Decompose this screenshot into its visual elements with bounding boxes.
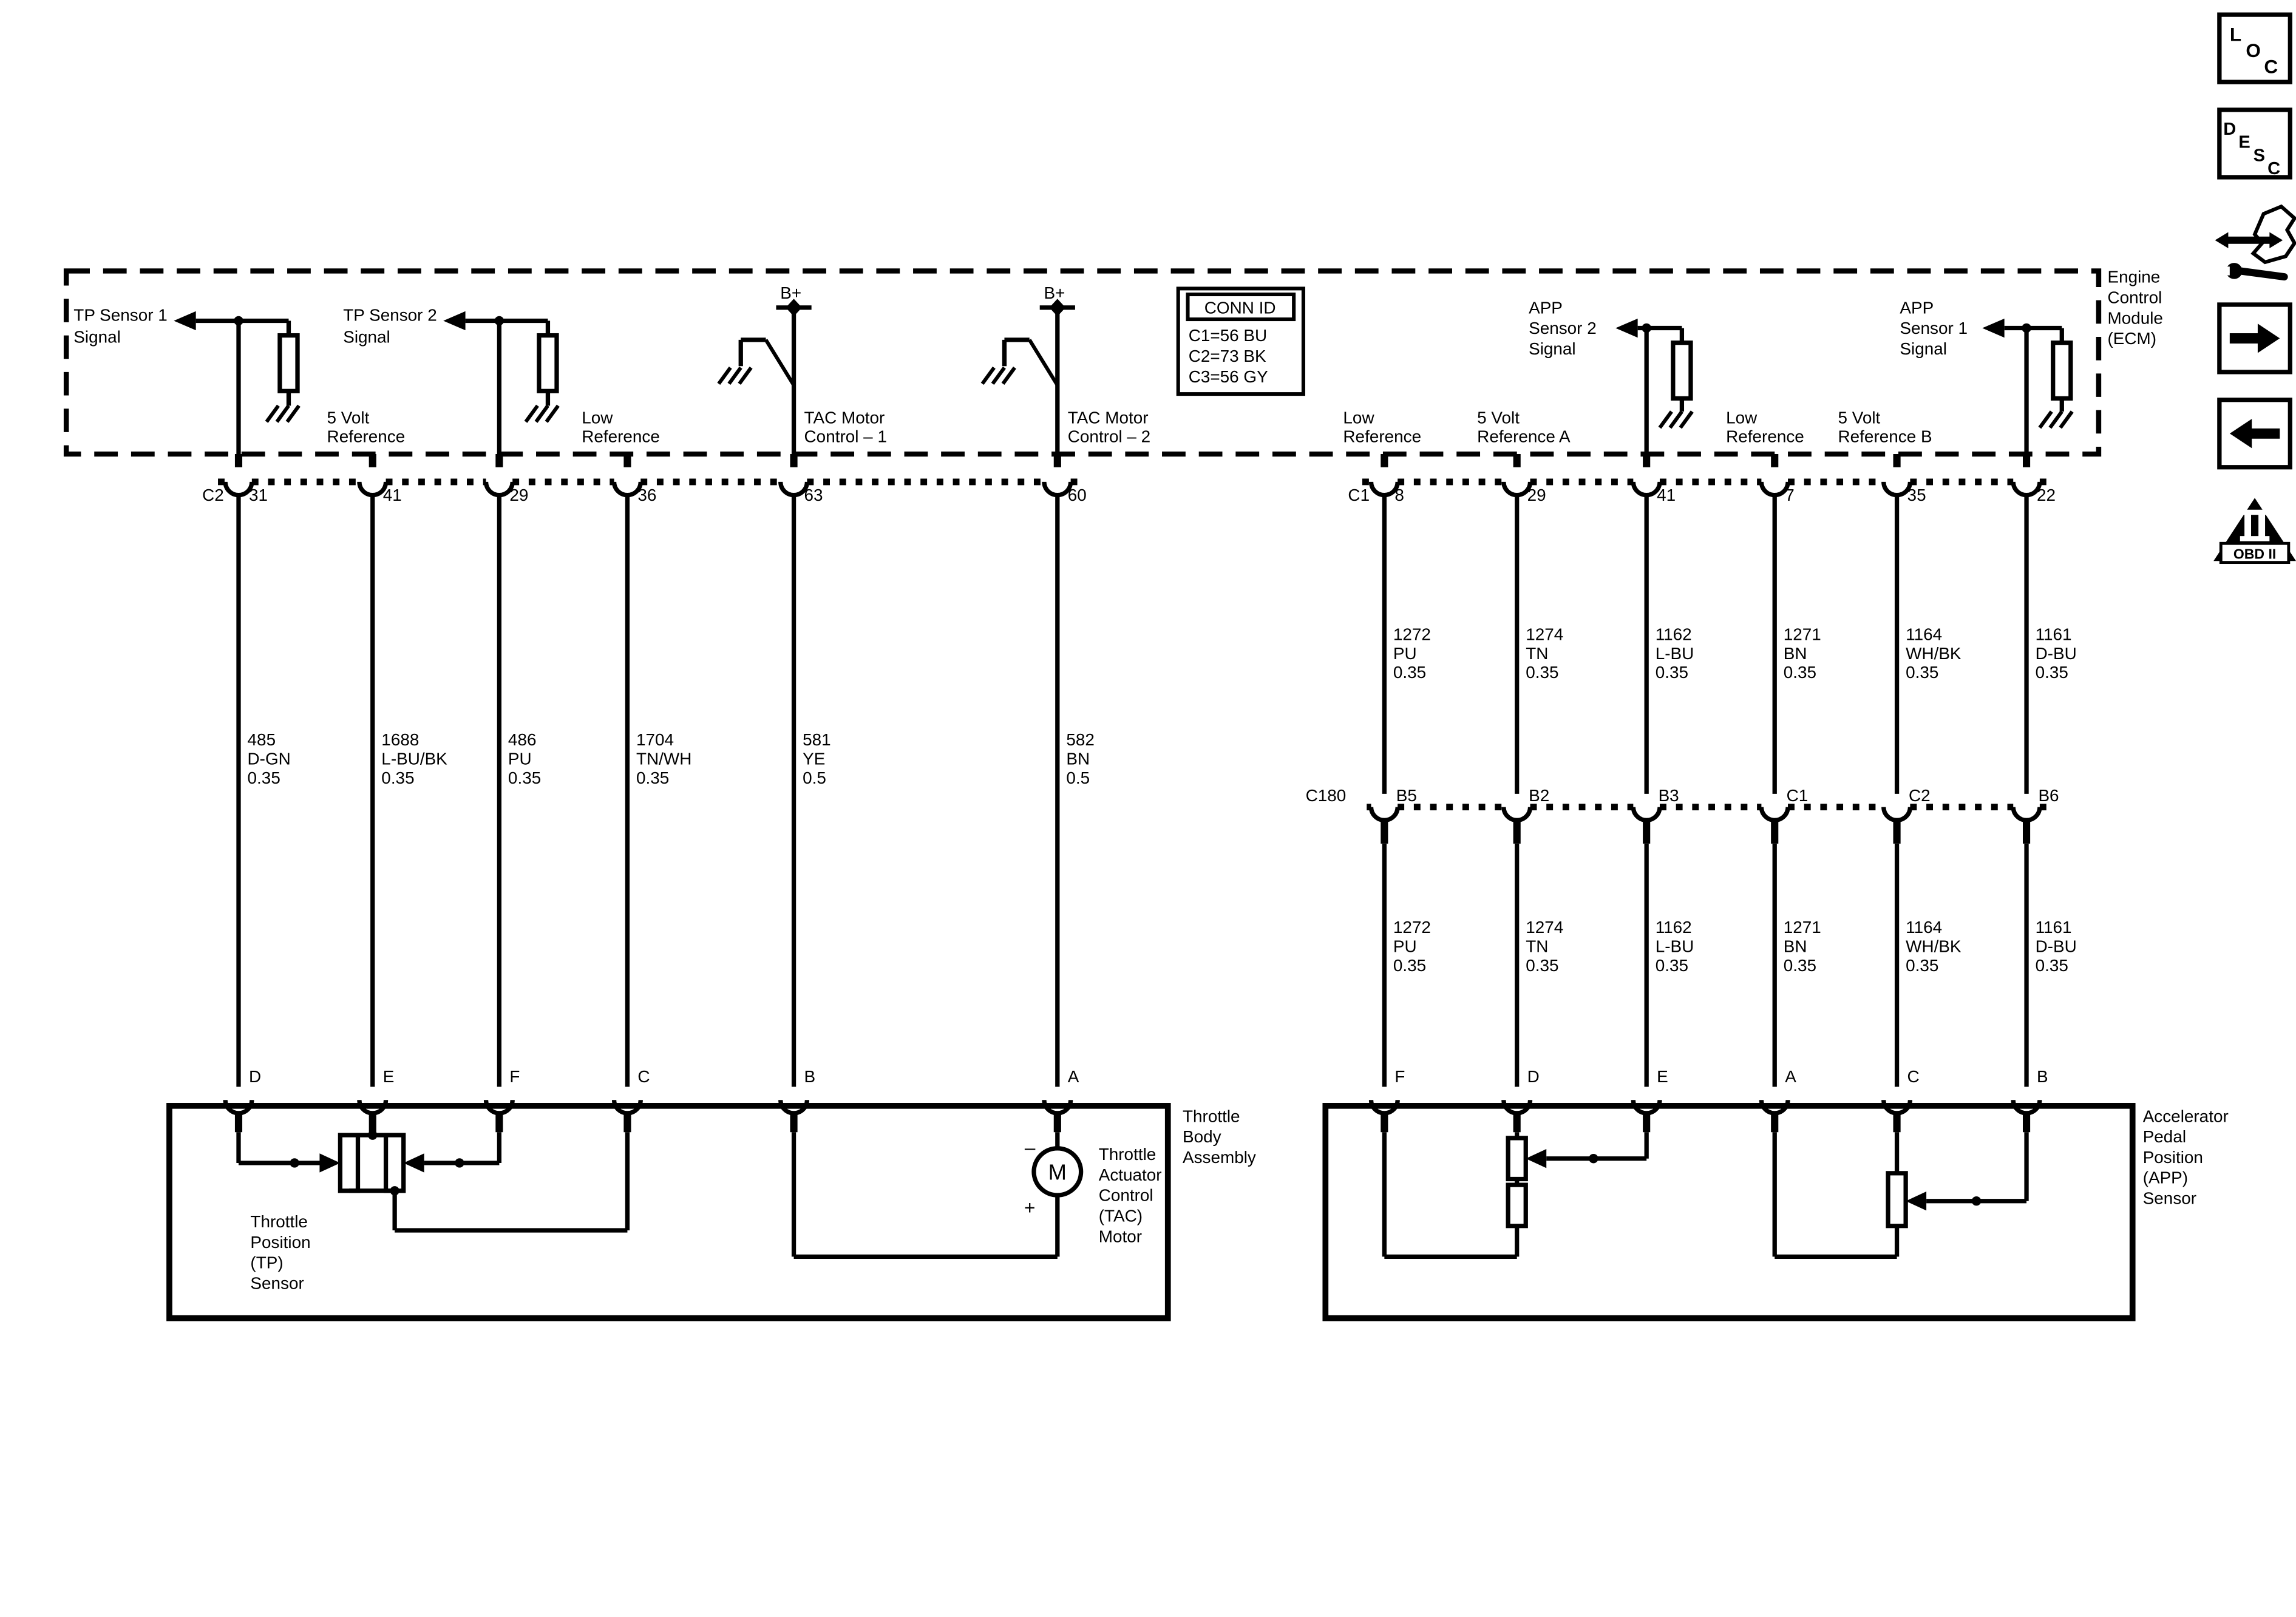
resistor: [1888, 1173, 1906, 1226]
connector-arc: [1504, 482, 1530, 495]
pin-number: 63: [804, 486, 823, 504]
wire-label: BN: [1784, 937, 1807, 956]
c180-pin: B2: [1529, 786, 1549, 805]
app-sensor-label: Accelerator Pedal Position (APP) Sensor: [2143, 1107, 2229, 1207]
wire-label: TN/WH: [636, 750, 691, 768]
low-ref-label: Reference: [1343, 427, 1421, 446]
obd2-icon[interactable]: OBD II: [2213, 498, 2296, 562]
tba-label-line: Assembly: [1183, 1148, 1256, 1167]
wire-label: 1274: [1526, 625, 1563, 644]
wire-label: 0.35: [248, 768, 280, 787]
resistor: [280, 336, 297, 392]
wire-label: D-BU: [2036, 937, 2077, 956]
wire-label: L-BU/BK: [381, 750, 447, 768]
ground-icon: [526, 405, 558, 422]
tac-motor-label: Actuator: [1099, 1165, 1162, 1184]
wire-label: 1164: [1906, 625, 1942, 644]
wire-label: 0.35: [1784, 956, 1816, 975]
tp-sensor-label: Position: [250, 1233, 310, 1252]
tac-motor-control2-driver: B+ TAC Motor Control – 2: [982, 283, 1150, 457]
wire-label: L-BU: [1656, 937, 1694, 956]
app2-potentiometer: [1384, 1132, 1646, 1256]
app1-label: Sensor 1: [1900, 319, 1968, 337]
connector-arc: [1633, 807, 1660, 821]
wire-label: 0.35: [1656, 956, 1688, 975]
connector-arc: [781, 482, 807, 495]
low-ref-label: Reference: [582, 427, 660, 446]
wire-label: 1688: [381, 730, 419, 749]
pin-number: 29: [509, 486, 528, 504]
wire-label: 0.35: [1656, 663, 1688, 682]
pin-letter: A: [1068, 1067, 1079, 1086]
wire-label: 1272: [1393, 918, 1431, 937]
wire-label: D-BU: [2036, 644, 2077, 663]
wire-label: 581: [803, 730, 831, 749]
tac-motor: M – + Throttle Actuator Control (TAC) Mo…: [794, 1132, 1162, 1256]
resistor: [1508, 1185, 1526, 1226]
app-label-line: (APP): [2143, 1168, 2188, 1187]
tba-label-line: Throttle: [1183, 1107, 1240, 1125]
wiper-arrow-icon: [319, 1153, 340, 1172]
wire-label: 0.35: [1393, 663, 1426, 682]
wire-label: 1271: [1784, 918, 1821, 937]
wire-label: WH/BK: [1906, 937, 1961, 956]
description-icon[interactable]: D E S C: [2220, 110, 2290, 178]
wire-label: 0.35: [1526, 956, 1558, 975]
wire-label: 0.35: [508, 768, 541, 787]
connector-arc: [225, 482, 252, 495]
pin-letter: B: [2037, 1067, 2048, 1086]
app-label-line: Sensor: [2143, 1189, 2196, 1208]
wiring-diagram: Engine Control Module (ECM) TP Sensor 1 …: [0, 0, 2296, 1617]
wire-label: 0.35: [1906, 663, 1938, 682]
harness-labels: 31D41E29F36C63B60A8FB529DB241EB37AC135CC…: [248, 486, 2077, 1086]
pin-number: 7: [1785, 486, 1795, 504]
ground-icon: [1660, 412, 1692, 428]
signal-arrow-icon: [1615, 319, 1637, 337]
junction-dot: [368, 1130, 378, 1139]
tac-motor-label: Throttle: [1099, 1145, 1156, 1164]
app1-label: Signal: [1900, 339, 1947, 358]
harness-wrench-icon[interactable]: [2215, 206, 2295, 279]
motor-minus: –: [1025, 1137, 1036, 1159]
wire-label: 0.5: [1066, 768, 1090, 787]
pin-letter: B: [804, 1067, 816, 1086]
pin-letter: F: [1394, 1067, 1405, 1086]
desc-letter: C: [2267, 159, 2280, 178]
wire-label: 0.35: [2036, 956, 2068, 975]
connector-arc: [486, 482, 513, 495]
connector-arc: [1504, 807, 1530, 821]
resistor: [340, 1135, 358, 1191]
tp-sensor1-signal-circuit: TP Sensor 1 Signal: [73, 306, 299, 457]
five-volt-ref-label: 5 Volt: [327, 408, 370, 427]
app-label-line: Pedal: [2143, 1127, 2186, 1146]
connector-arc: [1044, 482, 1071, 495]
ecm-label-line: (ECM): [2107, 329, 2156, 348]
wire-label: L-BU: [1656, 644, 1694, 663]
obd2-label: OBD II: [2233, 546, 2276, 562]
pin-letter: C: [1907, 1067, 1920, 1086]
app1-potentiometer: [1775, 1132, 2026, 1256]
wire-label: 1272: [1393, 625, 1431, 644]
conn-id-row: C1=56 BU: [1189, 326, 1267, 345]
ecm-label-line: Control: [2107, 288, 2162, 307]
wire-label: 1164: [1906, 918, 1942, 937]
ground-icon: [982, 368, 1014, 384]
wire-label: 0.35: [1906, 956, 1938, 975]
app2-label: APP: [1529, 298, 1563, 317]
c180-pin: C1: [1787, 786, 1809, 805]
pin-letter: F: [509, 1067, 520, 1086]
tac-motor-control1-driver: B+ TAC Motor Control – 1: [719, 283, 887, 457]
wire-label: 0.35: [381, 768, 414, 787]
loc-letter: C: [2264, 56, 2278, 78]
wiper-arrow-icon: [1526, 1149, 1546, 1168]
tac2-label: TAC Motor: [1068, 408, 1149, 427]
conn-id-row: C3=56 GY: [1189, 367, 1268, 386]
pin-letter: D: [1527, 1067, 1540, 1086]
ecm-label-line: Module: [2107, 308, 2162, 327]
bplus-label: B+: [780, 283, 801, 302]
wiper-arrow-icon: [1906, 1192, 1926, 1210]
tp-sensor-potentiometer: Throttle Position (TP) Sensor: [239, 1130, 627, 1292]
harness-wires: [218, 454, 2050, 1132]
tp-sensor-label: Throttle: [250, 1212, 308, 1231]
wire-label: TN: [1526, 937, 1548, 956]
c180-pin: B3: [1659, 786, 1679, 805]
pin-number: 22: [2037, 486, 2056, 504]
pin-number: 41: [383, 486, 402, 504]
tac-motor-label: (TAC): [1099, 1207, 1143, 1225]
throttle-body-assembly-label: Throttle Body Assembly: [1183, 1107, 1256, 1166]
wire-label: 0.5: [803, 768, 826, 787]
back-arrow-icon[interactable]: [2220, 400, 2290, 467]
ecm-label: Engine Control Module (ECM): [2107, 268, 2162, 348]
wire-label: 0.35: [636, 768, 669, 787]
app-sensor-box: [1325, 1106, 2132, 1318]
five-volt-ref-label: Reference: [327, 427, 406, 446]
connector-arc: [1884, 807, 1911, 821]
junction-dot: [455, 1158, 464, 1167]
switch-blade: [766, 340, 793, 385]
ground-icon: [719, 368, 751, 384]
signal-arrow-icon: [443, 311, 465, 330]
wire-label: BN: [1066, 750, 1090, 768]
wire-label: 1162: [1656, 625, 1692, 644]
low-ref-label: Reference: [1726, 427, 1804, 446]
five-volt-ref-b-label: 5 Volt: [1838, 408, 1881, 427]
five-volt-ref-a-label: Reference A: [1477, 427, 1571, 446]
signal-arrow-icon: [174, 311, 195, 330]
forward-arrow-icon[interactable]: [2220, 305, 2290, 372]
tp-sensor-label: Sensor: [250, 1274, 304, 1293]
resistor: [386, 1135, 404, 1191]
tp2-label: TP Sensor 2: [343, 306, 437, 325]
connector-arc: [1371, 807, 1398, 821]
tac1-label: Control – 1: [804, 427, 887, 446]
low-ref-label: Low: [1726, 408, 1758, 427]
connector-arc: [1371, 482, 1398, 495]
desc-letter: D: [2223, 120, 2236, 139]
junction-dot: [290, 1158, 299, 1167]
pin-number: 29: [1527, 486, 1546, 504]
wire-label: PU: [508, 750, 532, 768]
desc-letter: E: [2238, 133, 2250, 152]
wire-label: TN: [1526, 644, 1548, 663]
pin-number: 36: [637, 486, 656, 504]
wiper-arrow-icon: [404, 1153, 424, 1172]
pin-number: 31: [249, 486, 268, 504]
low-ref-label: Low: [1343, 408, 1374, 427]
conn-id-title: CONN ID: [1204, 298, 1276, 317]
connector-id-c180: C180: [1306, 786, 1347, 805]
junction-dot: [1589, 1154, 1598, 1163]
c180-pin: B6: [2038, 786, 2059, 805]
tp-sensor-label: (TP): [250, 1253, 283, 1272]
c180-pin: B5: [1396, 786, 1417, 805]
resistor: [1673, 343, 1691, 399]
low-ref-label: Low: [582, 408, 613, 427]
pin-letter: D: [249, 1067, 261, 1086]
pin-letter: C: [637, 1067, 650, 1086]
c180-pin: C2: [1909, 786, 1931, 805]
tac1-label: TAC Motor: [804, 408, 885, 427]
wire-label: PU: [1393, 644, 1417, 663]
resistor: [2053, 343, 2071, 399]
pin-number: 60: [1068, 486, 1087, 504]
wire-label: 1271: [1784, 625, 1821, 644]
throttle-body-assembly-box: [169, 1106, 1168, 1318]
app2-label: Sensor 2: [1529, 319, 1597, 337]
wire-label: YE: [803, 750, 825, 768]
wire-label: 1161: [2036, 625, 2072, 644]
wire-label: 485: [248, 730, 276, 749]
connector-arc: [2013, 807, 2040, 821]
wire-label: 1704: [636, 730, 674, 749]
signal-arrow-icon: [1982, 319, 2004, 337]
app1-label: APP: [1900, 298, 1934, 317]
wire-label: 1161: [2036, 918, 2072, 937]
pin-number: 35: [1907, 486, 1926, 504]
connector-id-c1: C1: [1348, 486, 1370, 504]
connector-arc: [1633, 482, 1660, 495]
wire-label: 486: [508, 730, 537, 749]
loc-letter: O: [2246, 40, 2261, 61]
wire-label: WH/BK: [1906, 644, 1961, 663]
five-volt-ref-b-label: Reference B: [1838, 427, 1932, 446]
resistor: [539, 336, 557, 392]
wire-label: D-GN: [248, 750, 291, 768]
connector-arc: [1761, 482, 1788, 495]
ecm-label-line: Engine: [2107, 268, 2160, 286]
resistor: [1508, 1138, 1526, 1179]
app-label-line: Position: [2143, 1148, 2203, 1167]
connector-arc: [614, 482, 641, 495]
connector-arc: [359, 482, 386, 495]
wire-label: PU: [1393, 937, 1417, 956]
pin-letter: E: [383, 1067, 395, 1086]
five-volt-ref-a-label: 5 Volt: [1477, 408, 1520, 427]
desc-letter: S: [2254, 146, 2265, 166]
wire-label: 0.35: [1526, 663, 1558, 682]
motor-plus: +: [1024, 1197, 1035, 1218]
wire-label: 0.35: [1393, 956, 1426, 975]
tp2-label: Signal: [343, 328, 390, 347]
tp1-label: Signal: [73, 328, 121, 347]
junction-dot: [1972, 1196, 1982, 1205]
app2-label: Signal: [1529, 339, 1576, 358]
ground-icon: [2040, 412, 2072, 428]
loc-letter: L: [2230, 24, 2241, 46]
tba-label-line: Body: [1183, 1127, 1221, 1146]
conn-id-table: CONN ID C1=56 BU C2=73 BK C3=56 GY: [1178, 288, 1303, 394]
wire-label: 0.35: [2036, 663, 2068, 682]
conn-id-row: C2=73 BK: [1189, 347, 1266, 365]
pin-letter: A: [1785, 1067, 1796, 1086]
connector-arc: [1884, 482, 1911, 495]
pin-number: 8: [1394, 486, 1404, 504]
pin-number: 41: [1657, 486, 1676, 504]
wire-label: 0.35: [1784, 663, 1816, 682]
wire-label: 582: [1066, 730, 1095, 749]
tp1-label: TP Sensor 1: [73, 306, 168, 325]
tac-motor-label: Control: [1099, 1186, 1153, 1205]
motor-m: M: [1048, 1160, 1067, 1185]
connector-id-c2: C2: [202, 486, 224, 504]
tac-motor-label: Motor: [1099, 1227, 1142, 1246]
wire-label: BN: [1784, 644, 1807, 663]
location-icon[interactable]: L O C: [2220, 15, 2290, 82]
connector-arc: [1761, 807, 1788, 821]
switch-blade: [1030, 340, 1058, 385]
pin-letter: E: [1657, 1067, 1668, 1086]
wire-label: 1274: [1526, 918, 1563, 937]
bplus-label: B+: [1044, 283, 1065, 302]
app-label-line: Accelerator: [2143, 1107, 2229, 1125]
wire-label: 1162: [1656, 918, 1692, 937]
tac2-label: Control – 2: [1068, 427, 1150, 446]
connector-arc: [2013, 482, 2040, 495]
ground-icon: [267, 405, 299, 422]
